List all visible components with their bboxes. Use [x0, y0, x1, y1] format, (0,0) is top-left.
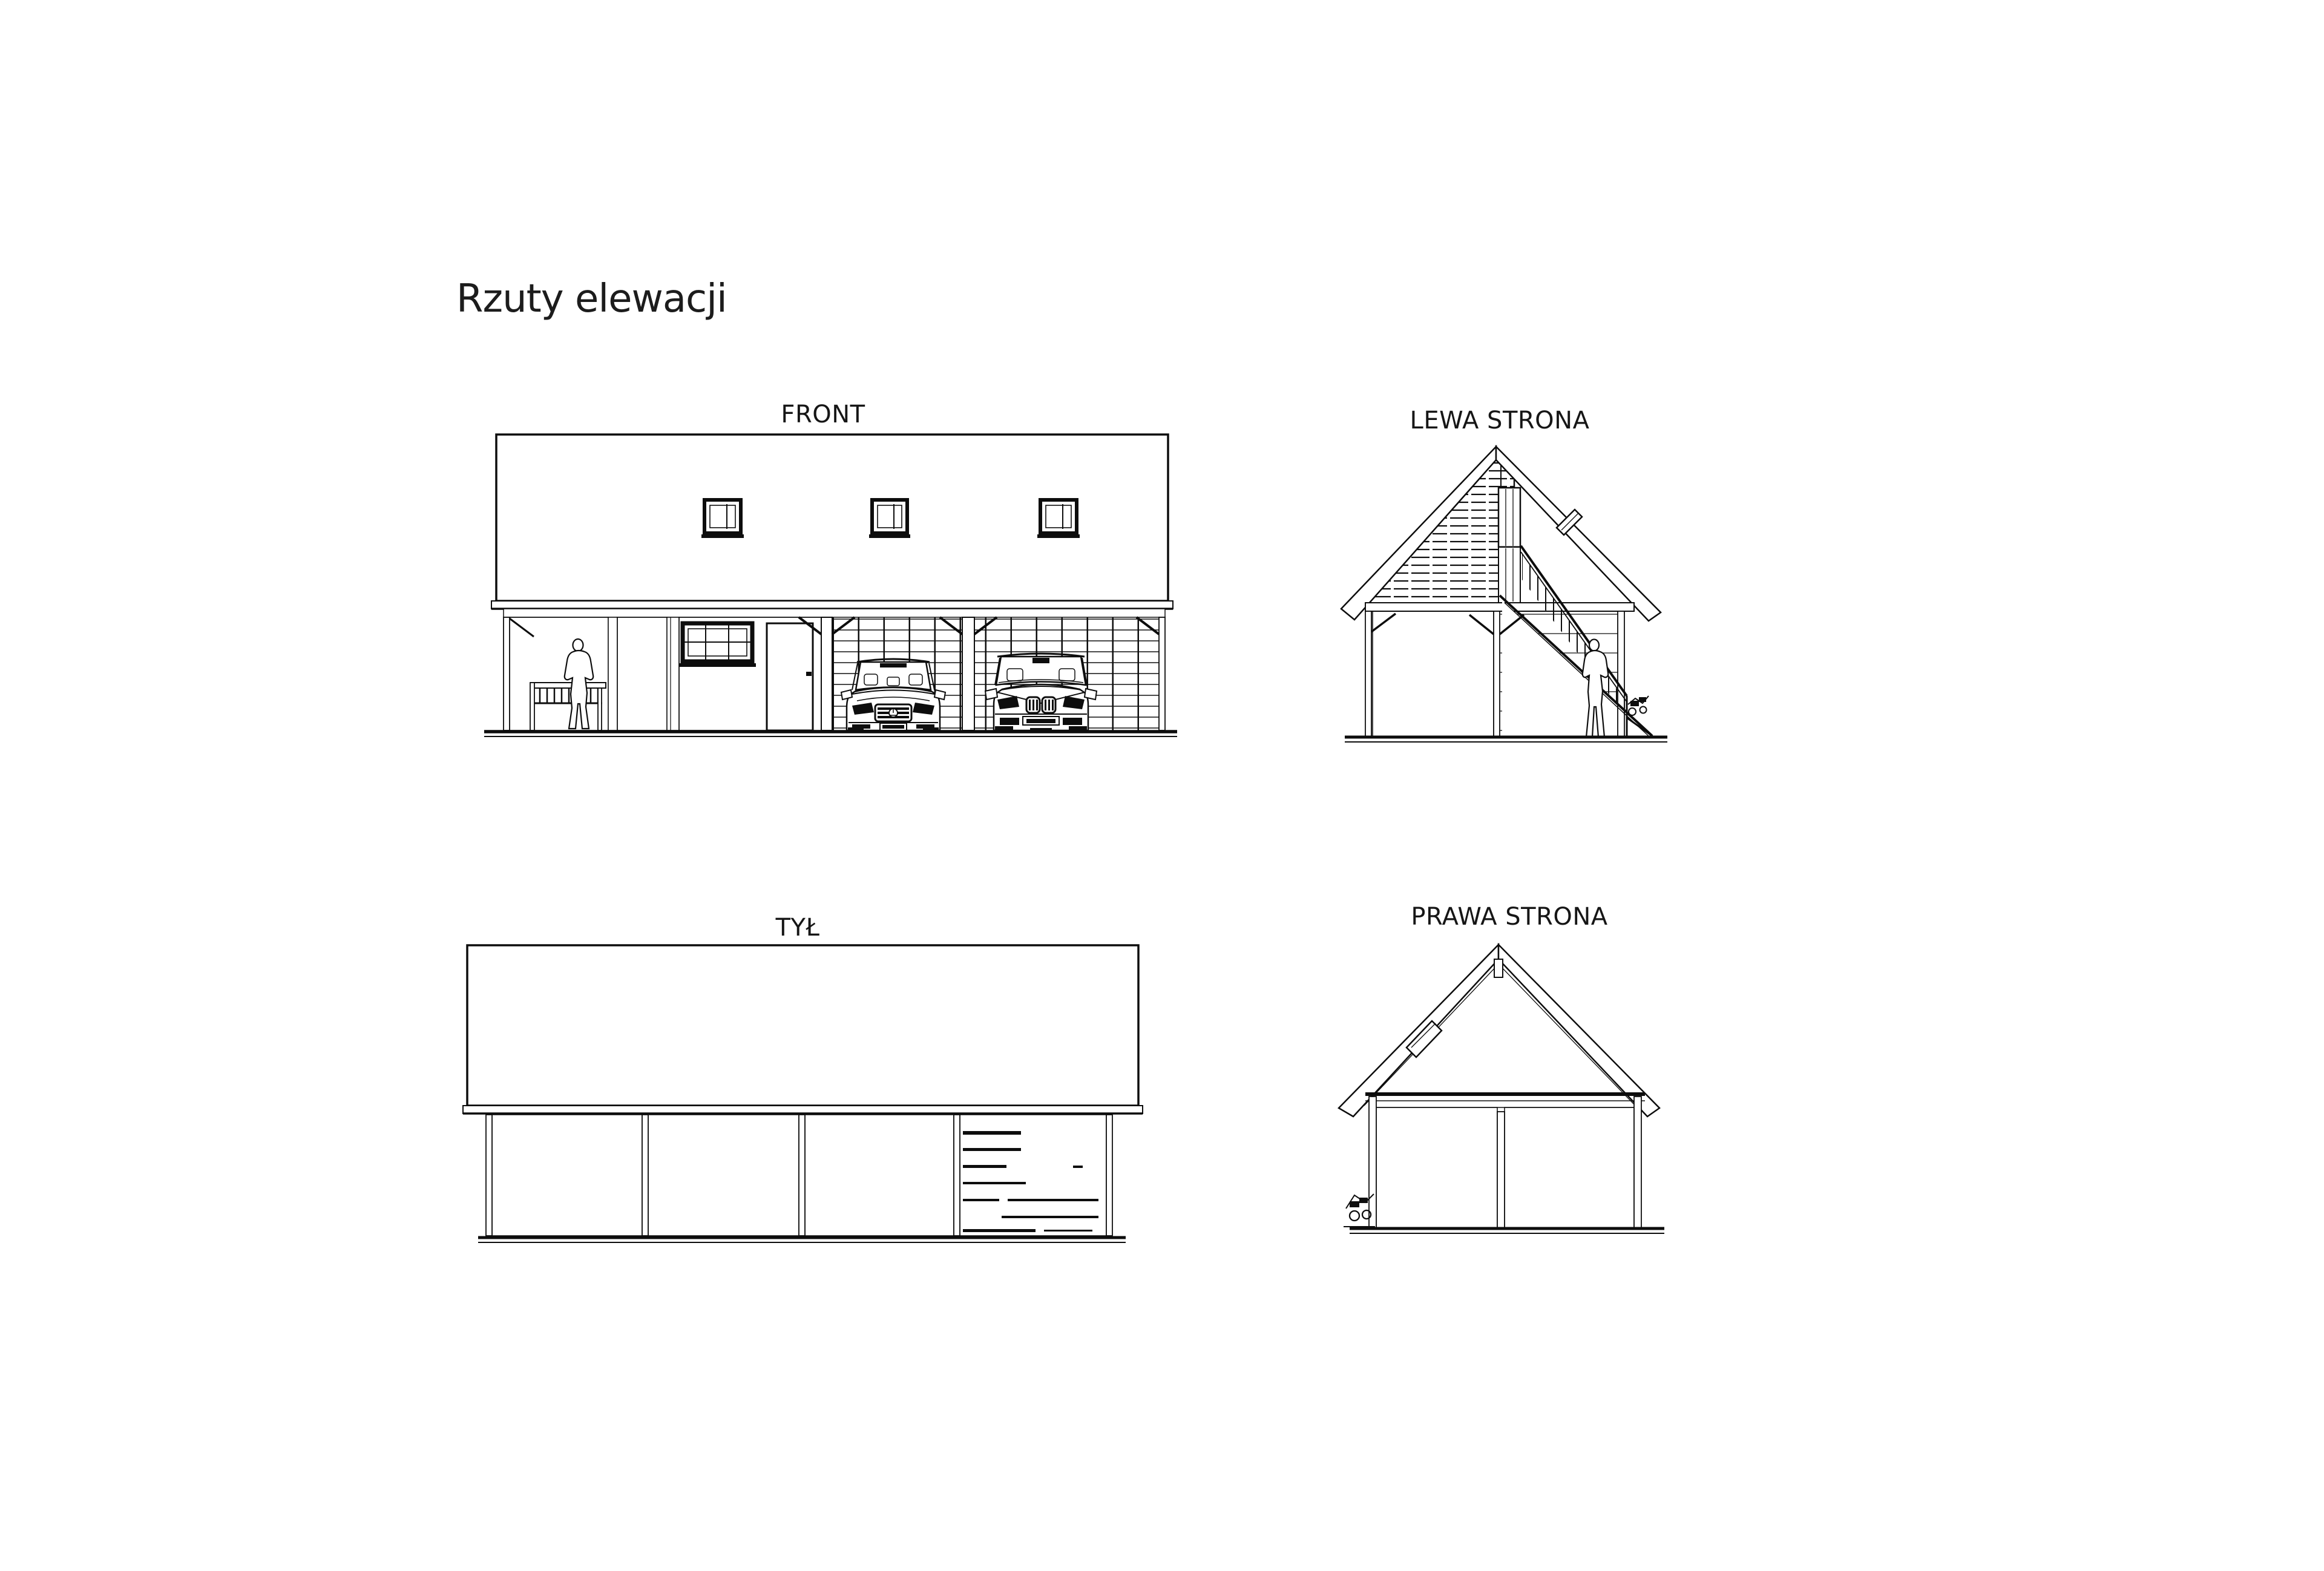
left-elevation-label: LEWA STRONA	[1410, 407, 1590, 435]
board-bay	[492, 1115, 642, 1236]
front-elevation-drawing	[478, 424, 1183, 744]
post	[1497, 1112, 1505, 1228]
post	[608, 617, 617, 730]
board-bay	[1376, 1107, 1497, 1228]
slat-wall	[1373, 611, 1494, 737]
post	[667, 617, 679, 730]
roof-window-1	[701, 500, 744, 538]
right-elevation-drawing	[1338, 935, 1701, 1245]
post	[1618, 611, 1624, 737]
post	[962, 617, 974, 730]
board-bay	[648, 1115, 799, 1236]
elevation-sheet: Rzuty elewacji	[0, 0, 2324, 1571]
knee-brace	[510, 618, 534, 637]
car-sedan	[841, 659, 945, 730]
post	[504, 617, 510, 730]
board-bay	[1505, 1107, 1634, 1228]
board-bay	[805, 1115, 954, 1236]
front-window	[679, 623, 756, 667]
roof	[1339, 945, 1659, 1117]
front-door	[767, 623, 813, 730]
post	[642, 1115, 648, 1236]
back-elevation-drawing	[463, 941, 1159, 1280]
post	[1634, 1097, 1641, 1228]
slat-marks	[963, 1131, 1098, 1232]
back-roof	[463, 945, 1143, 1113]
left-elevation-drawing	[1338, 441, 1701, 750]
loft-door	[1498, 488, 1520, 603]
post	[1494, 611, 1500, 737]
front-roof	[496, 435, 1168, 601]
back-wall	[478, 1115, 1126, 1242]
post	[1365, 611, 1371, 737]
back-elevation-label: TYŁ	[776, 914, 820, 942]
roof-window-3	[1037, 500, 1080, 538]
post	[486, 1115, 492, 1236]
roof-window-2	[869, 500, 910, 538]
car-suv	[985, 654, 1097, 730]
beam	[1365, 603, 1634, 611]
door-handle	[806, 672, 812, 676]
post	[954, 1115, 960, 1236]
page-title: Rzuty elewacji	[456, 277, 727, 321]
right-elevation-label: PRAWA STRONA	[1411, 903, 1607, 931]
right-wall	[1344, 1094, 1664, 1233]
post	[1369, 1097, 1376, 1228]
king-post	[1494, 959, 1503, 977]
post	[799, 1115, 805, 1236]
post	[1159, 617, 1165, 730]
louver-bay	[617, 617, 667, 730]
bench	[530, 683, 606, 730]
post	[821, 617, 832, 730]
front-eaves	[491, 601, 1173, 617]
post	[1106, 1115, 1112, 1236]
front-wall	[484, 617, 1177, 736]
knee-brace	[1371, 614, 1396, 632]
knee-brace	[1469, 615, 1494, 634]
